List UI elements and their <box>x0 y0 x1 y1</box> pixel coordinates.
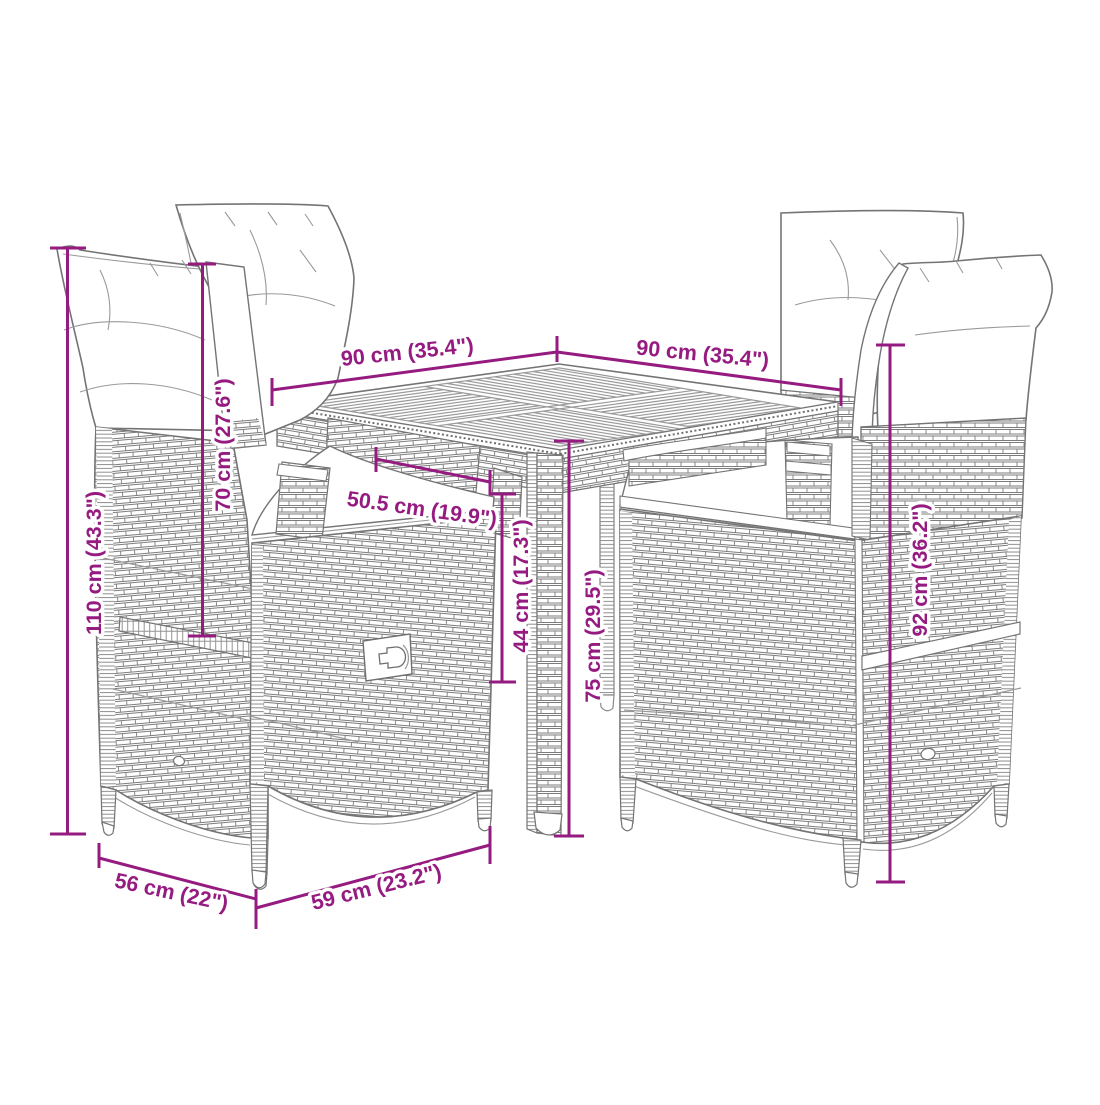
svg-text:75 cm (29.5"): 75 cm (29.5") <box>581 569 605 702</box>
svg-text:92 cm (36.2"): 92 cm (36.2") <box>908 503 932 636</box>
svg-text:110 cm (43.3"): 110 cm (43.3") <box>82 491 106 635</box>
svg-text:70 cm (27.6"): 70 cm (27.6") <box>211 378 235 511</box>
svg-text:44 cm (17.3"): 44 cm (17.3") <box>509 519 533 652</box>
